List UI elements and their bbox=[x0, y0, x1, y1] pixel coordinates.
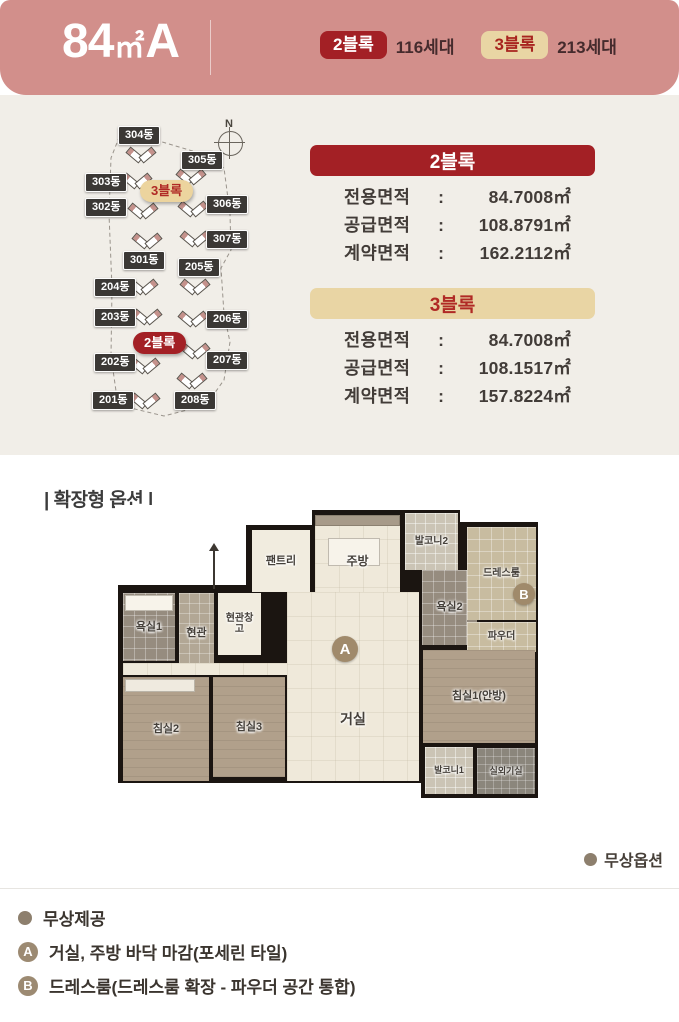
building-label: 202동 bbox=[94, 353, 136, 372]
building-label: 204동 bbox=[94, 278, 136, 297]
building-label: 301동 bbox=[123, 251, 165, 270]
legend-text: 드레스룸(드레스룸 확장 - 파우더 공간 통합) bbox=[49, 973, 355, 998]
block-oval-3블록: 3블록 bbox=[140, 180, 193, 202]
fixture bbox=[125, 595, 173, 611]
legend-text: 무상제공 bbox=[43, 905, 106, 930]
room-dress: 드레스룸 bbox=[467, 527, 536, 620]
fixture bbox=[125, 679, 195, 692]
building-label: 203동 bbox=[94, 308, 136, 327]
dot-icon bbox=[584, 853, 597, 866]
title-unit: ㎡ bbox=[114, 33, 144, 63]
room-acroom: 실외기실 bbox=[477, 748, 535, 794]
site-info-section: N 304동305동303동302동306동307동301동205동204동20… bbox=[0, 95, 679, 455]
area-row: 전용면적 : 84.7008㎡ bbox=[344, 184, 571, 212]
area-row: 공급면적 : 108.1517㎡ bbox=[344, 355, 571, 383]
room-label: 실외기실 bbox=[489, 766, 522, 776]
building-icon bbox=[132, 308, 162, 328]
building-label: 303동 bbox=[85, 173, 127, 192]
block2-units: 116세대 bbox=[396, 33, 455, 58]
header-block-info: 2블록 116세대 3블록 213세대 bbox=[320, 31, 635, 59]
area-value: 108.8791㎡ bbox=[454, 212, 571, 237]
legend-item: A거실, 주방 바닥 마감(포세린 타일) bbox=[18, 939, 355, 964]
room-label: 욕실1 bbox=[136, 621, 162, 634]
building-label: 306동 bbox=[206, 195, 248, 214]
block3-units: 213세대 bbox=[557, 33, 617, 58]
area-label: 계약면적 bbox=[344, 383, 428, 408]
room-bedroom2: 침실2 bbox=[123, 677, 209, 781]
dot-icon bbox=[18, 911, 32, 925]
area-value: 84.7008㎡ bbox=[454, 184, 571, 209]
room-pantry: 팬트리 bbox=[252, 530, 310, 592]
room-label: 발코니2 bbox=[415, 536, 448, 548]
building-icon bbox=[130, 392, 160, 412]
option-badge-B: B bbox=[513, 583, 535, 605]
area-value: 162.2112㎡ bbox=[454, 240, 571, 265]
legend-item: B드레스룸(드레스룸 확장 - 파우더 공간 통합) bbox=[18, 973, 355, 998]
option-badge-A: A bbox=[332, 636, 358, 662]
building-label: 207동 bbox=[206, 351, 248, 370]
building-label: 302동 bbox=[85, 198, 127, 217]
area-row: 공급면적 : 108.8791㎡ bbox=[344, 212, 571, 240]
building-label: 206동 bbox=[206, 310, 248, 329]
room-balcony2: 발코니2 bbox=[405, 513, 458, 570]
area-value: 157.8224㎡ bbox=[454, 383, 571, 408]
room-entry-storage: 현관창고 bbox=[218, 593, 261, 655]
room-bedroom3: 침실3 bbox=[213, 677, 285, 777]
building-icon bbox=[178, 200, 208, 220]
room-label: 침실3 bbox=[236, 721, 262, 734]
room-bedroom1: 침실1(안방) bbox=[423, 650, 535, 743]
card-title-2block: 2블록 bbox=[310, 145, 595, 176]
room-label: 파우더 bbox=[488, 631, 516, 643]
block2-badge: 2블록 bbox=[320, 31, 387, 59]
legend-badge-A: A bbox=[18, 942, 38, 962]
header-divider bbox=[210, 20, 211, 75]
room-label: 팬트리 bbox=[266, 555, 296, 568]
room-label: 침실2 bbox=[153, 723, 179, 736]
room-label: 현관창고 bbox=[225, 613, 255, 636]
floor-plan: 욕실1현관현관창고팬트리주방발코니2욕실2드레스룸파우더거실침실2침실3침실1(… bbox=[115, 505, 545, 805]
legend: 무상제공A거실, 주방 바닥 마감(포세린 타일)B드레스룸(드레스룸 확장 -… bbox=[18, 905, 355, 998]
building-label: 304동 bbox=[118, 126, 160, 145]
flyer-page: 84 ㎡ A 2블록 116세대 3블록 213세대 N 304동305동303… bbox=[0, 0, 679, 1022]
room-hall bbox=[123, 663, 293, 675]
building-label: 201동 bbox=[92, 391, 134, 410]
title-type: A bbox=[145, 18, 179, 66]
building-icon bbox=[128, 202, 158, 222]
floor-plan-section: | 확장형 옵션 | 욕실1현관현관창고팬트리주방발코니2욕실2드레스룸파우더거… bbox=[0, 455, 679, 1022]
legend-text: 거실, 주방 바닥 마감(포세린 타일) bbox=[49, 939, 287, 964]
building-label: 208동 bbox=[174, 391, 216, 410]
area-label: 전용면적 bbox=[344, 327, 428, 352]
building-label: 307동 bbox=[206, 230, 248, 249]
area-row: 계약면적 : 157.8224㎡ bbox=[344, 383, 571, 411]
legend-item: 무상제공 bbox=[18, 905, 355, 930]
block-oval-2블록: 2블록 bbox=[133, 332, 186, 354]
area-value: 84.7008㎡ bbox=[454, 327, 571, 352]
card-body-2block: 전용면적 : 84.7008㎡ 공급면적 : 108.8791㎡ 계약면적 : … bbox=[310, 176, 595, 268]
room-label: 거실 bbox=[287, 711, 419, 727]
card-body-3block: 전용면적 : 84.7008㎡ 공급면적 : 108.1517㎡ 계약면적 : … bbox=[310, 319, 595, 411]
building-icon bbox=[180, 278, 210, 298]
area-label: 공급면적 bbox=[344, 212, 428, 237]
room-label: 현관 bbox=[186, 627, 206, 640]
building-label: 205동 bbox=[178, 258, 220, 277]
area-label: 공급면적 bbox=[344, 355, 428, 380]
fixture bbox=[315, 515, 400, 526]
building-icon bbox=[126, 146, 156, 166]
building-icon bbox=[177, 372, 207, 392]
block3-badge: 3블록 bbox=[481, 31, 548, 59]
building-label: 305동 bbox=[181, 151, 223, 170]
header: 84 ㎡ A 2블록 116세대 3블록 213세대 bbox=[0, 0, 679, 95]
room-label: 발코니1 bbox=[434, 765, 464, 775]
room-label: 욕실2 bbox=[436, 601, 462, 614]
building-icon bbox=[132, 232, 162, 252]
info-card-3block: 3블록 전용면적 : 84.7008㎡ 공급면적 : 108.1517㎡ 계약면… bbox=[310, 288, 595, 411]
room-label: 침실1(안방) bbox=[452, 690, 506, 703]
room-label: 주방 bbox=[315, 555, 400, 569]
page-title: 84 ㎡ A bbox=[62, 18, 179, 66]
building-icon bbox=[178, 310, 208, 330]
room-living: 거실 bbox=[287, 592, 419, 781]
north-arrow-icon bbox=[212, 545, 215, 589]
area-label: 전용면적 bbox=[344, 184, 428, 209]
room-balcony1: 발코니1 bbox=[425, 747, 473, 794]
info-card-2block: 2블록 전용면적 : 84.7008㎡ 공급면적 : 108.8791㎡ 계약면… bbox=[310, 145, 595, 268]
area-row: 계약면적 : 162.2112㎡ bbox=[344, 240, 571, 268]
area-value: 108.1517㎡ bbox=[454, 355, 571, 380]
title-number: 84 bbox=[62, 18, 113, 66]
legend-badge-B: B bbox=[18, 976, 38, 996]
room-label: 드레스룸 bbox=[483, 568, 520, 580]
site-map: N 304동305동303동302동306동307동301동205동204동20… bbox=[78, 118, 293, 433]
footer-divider bbox=[0, 888, 679, 889]
room-powder: 파우더 bbox=[467, 622, 536, 652]
room-entry: 현관 bbox=[179, 593, 214, 673]
free-option-note: 무상옵션 bbox=[584, 847, 663, 871]
area-row: 전용면적 : 84.7008㎡ bbox=[344, 327, 571, 355]
free-option-text: 무상옵션 bbox=[604, 847, 663, 871]
area-label: 계약면적 bbox=[344, 240, 428, 265]
card-title-3block: 3블록 bbox=[310, 288, 595, 319]
